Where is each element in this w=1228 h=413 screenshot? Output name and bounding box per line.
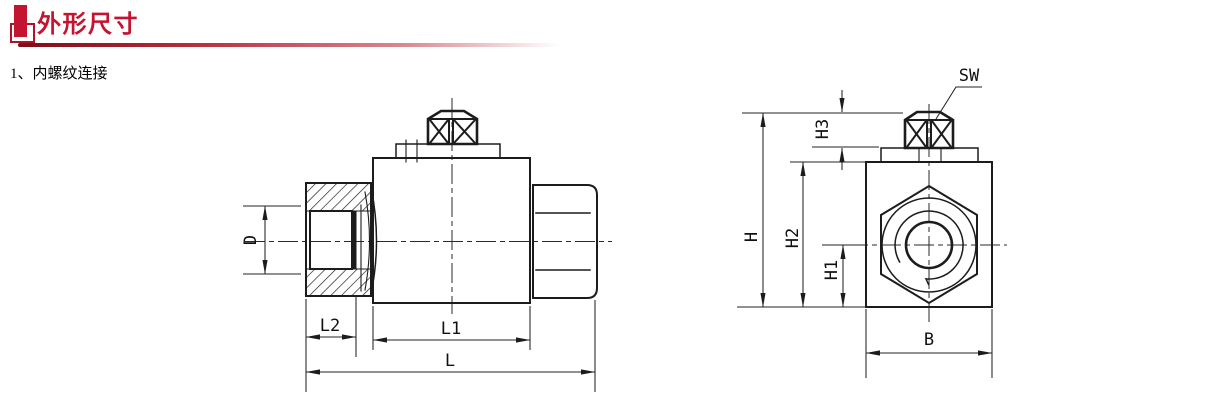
extension-lines-side — [306, 296, 595, 392]
dim-label-H3: H3 — [813, 119, 833, 139]
dim-label-D: D — [241, 235, 261, 245]
dim-label-B: B — [924, 330, 934, 350]
dimension-D: D — [241, 206, 301, 274]
dim-label-H1: H1 — [822, 260, 842, 280]
dim-label-L2: L2 — [320, 316, 340, 336]
dim-label-H: H — [742, 232, 762, 242]
side-view-drawing: D L2 L1 L — [241, 98, 612, 392]
dim-label-SW: SW — [959, 66, 980, 86]
dimension-L2: L2 — [306, 316, 356, 337]
dim-label-L1: L1 — [441, 319, 461, 339]
left-port-section — [306, 183, 377, 296]
dimension-B: B — [866, 330, 992, 353]
dim-label-H2: H2 — [783, 228, 803, 248]
dimension-H1: H1 — [822, 245, 843, 307]
technical-drawing-canvas: D L2 L1 L — [0, 0, 1228, 413]
dim-label-L: L — [445, 351, 455, 371]
front-view-drawing: SW H H2 H3 H1 B — [737, 66, 1007, 378]
dimension-H2: H2 — [783, 162, 803, 307]
dimension-H3: H3 — [813, 90, 842, 170]
dimension-L: L — [306, 351, 595, 372]
sw-callout: SW — [936, 66, 982, 119]
dimension-H: H — [742, 113, 763, 307]
dimension-L1: L1 — [373, 319, 530, 340]
